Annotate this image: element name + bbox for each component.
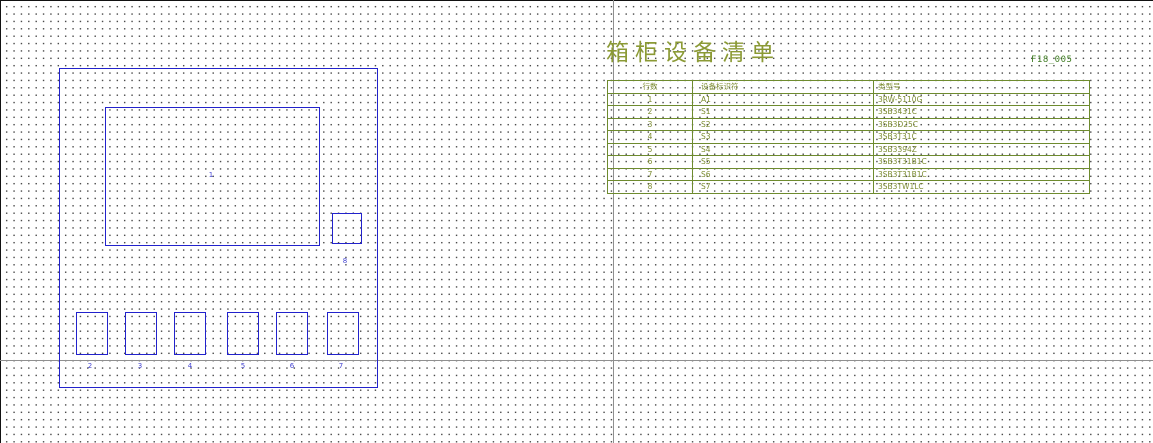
table-row[interactable]: 2 S1 3SB3431C [608,106,1090,119]
cell-row-number: 8 [608,181,693,194]
cell-row-number: 6 [608,156,693,169]
cad-sheet-canvas[interactable]: 1 8 2 3 4 5 6 7 箱柜设备清单 F18_005 行数 设备标识符 … [0,0,1153,443]
cell-device-tag: S6 [693,168,874,181]
doc-number: F18_005 [1031,55,1072,65]
item-label-2: 2 [80,363,100,370]
sheet-divider-vertical [613,0,614,443]
cabinet-button-rect-6[interactable] [327,312,359,355]
cell-row-number: 7 [608,168,693,181]
column-header-row-count: 行数 [608,81,693,94]
cell-device-tag: S4 [693,143,874,156]
cell-row-number: 5 [608,143,693,156]
cell-part-number: 3SB3TW1LC [874,181,1090,194]
table-row[interactable]: 1 A1 3RW-5110G [608,93,1090,106]
item-label-6: 6 [282,363,302,370]
cell-row-number: 1 [608,93,693,106]
table-row[interactable]: 7 S6 3SB3T31B1C [608,168,1090,181]
item-label-1: 1 [201,172,221,179]
cell-part-number: 3SB3D25C [874,118,1090,131]
cabinet-button-rect-4[interactable] [227,312,259,355]
cell-device-tag: S2 [693,118,874,131]
item-label-3: 3 [130,363,150,370]
item-label-7: 7 [331,363,351,370]
table-row[interactable]: 6 S5 3SB3T31B1C [608,156,1090,169]
cell-device-tag: S5 [693,156,874,169]
cabinet-button-rect-5[interactable] [276,312,308,355]
cell-row-number: 3 [608,118,693,131]
cabinet-lamp-rect[interactable] [332,213,362,244]
cell-device-tag: S7 [693,181,874,194]
cell-part-number: 3SB3T31B1C [874,156,1090,169]
cabinet-button-rect-3[interactable] [174,312,206,355]
cabinet-button-rect-1[interactable] [76,312,108,355]
table-row[interactable]: 3 S2 3SB3D25C [608,118,1090,131]
cell-row-number: 4 [608,131,693,144]
table-row[interactable]: 4 S3 3SB3T31C [608,131,1090,144]
cell-part-number: 3SB3394Z [874,143,1090,156]
table-row[interactable]: 5 S4 3SB3394Z [608,143,1090,156]
cell-row-number: 2 [608,106,693,119]
cell-part-number: 3SB3431C [874,106,1090,119]
cell-device-tag: S1 [693,106,874,119]
equipment-table-header-row: 行数 设备标识符 类型号 [608,81,1090,94]
equipment-table[interactable]: 行数 设备标识符 类型号 1 A1 3RW-5110G 2 S1 3SB3431… [607,80,1090,194]
cell-device-tag: A1 [693,93,874,106]
cabinet-button-rect-2[interactable] [125,312,157,355]
item-label-8: 8 [335,258,355,265]
item-label-5: 5 [233,363,253,370]
sheet-border-left [0,0,1,443]
cell-device-tag: S3 [693,131,874,144]
sheet-border-top [0,0,1153,1]
item-label-4: 4 [180,363,200,370]
table-row[interactable]: 8 S7 3SB3TW1LC [608,181,1090,194]
column-header-device-tag: 设备标识符 [693,81,874,94]
page-title: 箱柜设备清单 [606,41,780,66]
cell-part-number: 3SB3T31C [874,131,1090,144]
cell-part-number: 3RW-5110G [874,93,1090,106]
cell-part-number: 3SB3T31B1C [874,168,1090,181]
column-header-type-number: 类型号 [874,81,1090,94]
